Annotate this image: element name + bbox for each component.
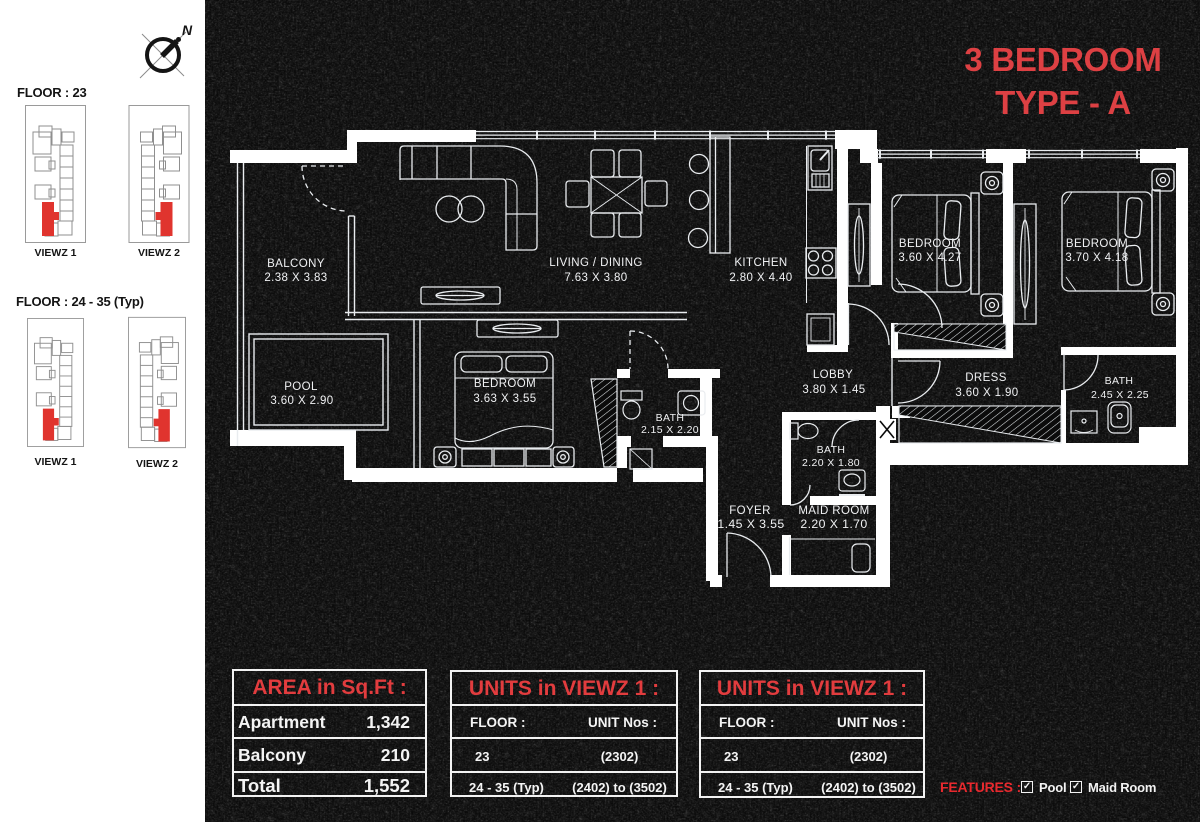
svg-text:POOL: POOL — [284, 381, 318, 393]
svg-text:BATH: BATH — [656, 412, 685, 424]
svg-text:3.70 X 4.18: 3.70 X 4.18 — [1065, 252, 1128, 264]
svg-text:3.60 X 1.90: 3.60 X 1.90 — [955, 387, 1018, 399]
svg-text:2.20 X 1.70: 2.20 X 1.70 — [800, 517, 867, 531]
svg-text:BEDROOM: BEDROOM — [1066, 238, 1128, 250]
svg-text:FOYER: FOYER — [729, 505, 771, 517]
svg-text:7.63 X 3.80: 7.63 X 3.80 — [564, 272, 627, 284]
svg-text:3.60 X 2.90: 3.60 X 2.90 — [270, 395, 333, 407]
svg-text:BALCONY: BALCONY — [267, 258, 325, 270]
svg-text:BATH: BATH — [817, 444, 846, 456]
svg-text:2.15 X 2.20: 2.15 X 2.20 — [641, 424, 699, 436]
svg-text:2.45 X 2.25: 2.45 X 2.25 — [1091, 389, 1149, 401]
svg-text:DRESS: DRESS — [965, 372, 1007, 384]
svg-text:BEDROOM: BEDROOM — [899, 238, 961, 250]
svg-text:3.80 X 1.45: 3.80 X 1.45 — [802, 384, 865, 396]
svg-text:3.60 X 4.27: 3.60 X 4.27 — [898, 252, 961, 264]
svg-text:LIVING / DINING: LIVING / DINING — [549, 257, 643, 269]
svg-text:KITCHEN: KITCHEN — [734, 257, 787, 269]
svg-text:BATH: BATH — [1105, 375, 1134, 387]
svg-text:2.80 X 4.40: 2.80 X 4.40 — [729, 272, 792, 284]
svg-text:2.38 X 3.83: 2.38 X 3.83 — [264, 272, 327, 284]
svg-text:N: N — [182, 22, 193, 38]
svg-text:2.20 X 1.80: 2.20 X 1.80 — [802, 457, 860, 469]
svg-text:LOBBY: LOBBY — [813, 369, 853, 381]
svg-text:BEDROOM: BEDROOM — [474, 378, 536, 390]
svg-text:3.63 X 3.55: 3.63 X 3.55 — [473, 393, 536, 405]
svg-text:1.45 X 3.55: 1.45 X 3.55 — [717, 517, 784, 531]
svg-text:MAID ROOM: MAID ROOM — [798, 505, 869, 517]
